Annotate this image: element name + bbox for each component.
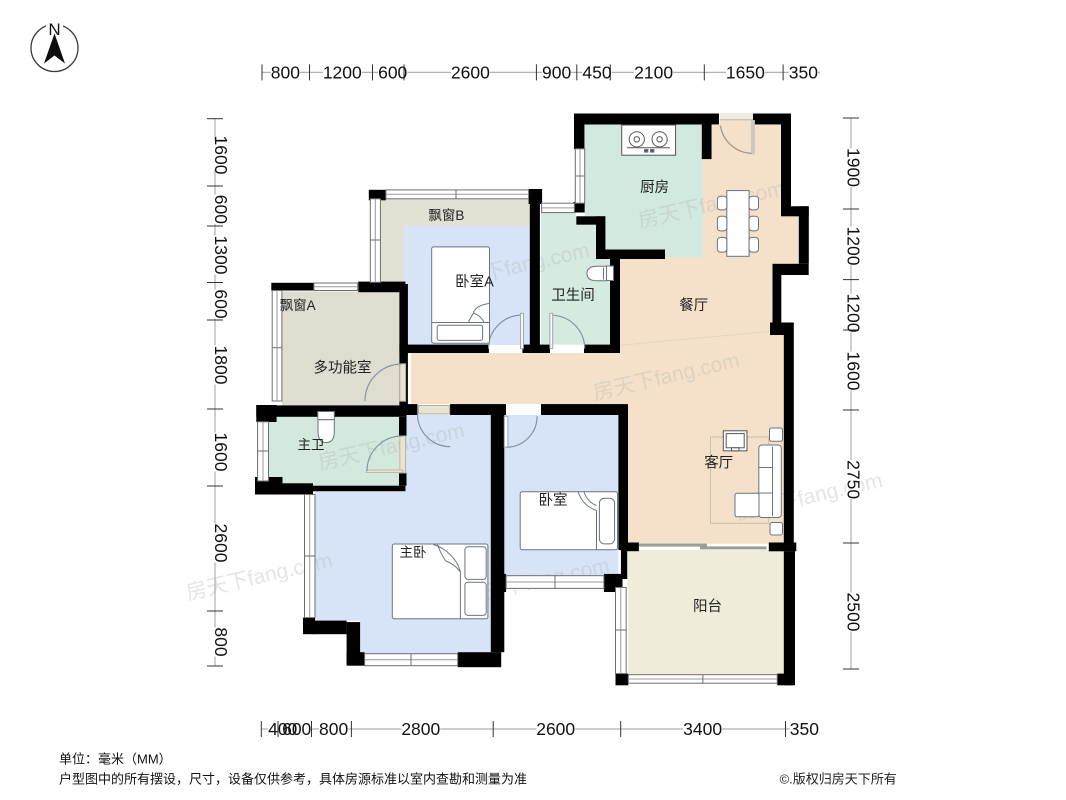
svg-text:户型图中的所有摆设，尺寸，设备仅供参考，具体房源标准以室内查: 户型图中的所有摆设，尺寸，设备仅供参考，具体房源标准以室内查勘和测量为准 bbox=[59, 772, 527, 787]
svg-text:1600: 1600 bbox=[211, 433, 231, 472]
svg-text:客厅: 客厅 bbox=[704, 455, 733, 472]
svg-text:900: 900 bbox=[542, 63, 571, 83]
svg-text:主卫: 主卫 bbox=[298, 438, 325, 453]
svg-text:800: 800 bbox=[271, 63, 300, 83]
svg-text:450: 450 bbox=[582, 63, 611, 83]
svg-text:1800: 1800 bbox=[211, 346, 231, 385]
svg-text:350: 350 bbox=[789, 63, 818, 83]
svg-text:阳台: 阳台 bbox=[693, 598, 722, 615]
svg-text:800: 800 bbox=[211, 627, 231, 656]
svg-text:350: 350 bbox=[790, 719, 819, 739]
svg-text:1900: 1900 bbox=[843, 148, 863, 187]
svg-text:1200: 1200 bbox=[843, 294, 863, 333]
svg-text:2600: 2600 bbox=[536, 719, 575, 739]
svg-text:600: 600 bbox=[211, 195, 231, 224]
svg-text:600: 600 bbox=[282, 719, 311, 739]
svg-text:1300: 1300 bbox=[211, 236, 231, 275]
svg-text:800: 800 bbox=[319, 719, 348, 739]
svg-text:1600: 1600 bbox=[843, 352, 863, 391]
svg-text:3400: 3400 bbox=[683, 719, 722, 739]
svg-text:飘窗A: 飘窗A bbox=[280, 297, 316, 313]
svg-text:餐厅: 餐厅 bbox=[679, 297, 708, 314]
svg-text:1200: 1200 bbox=[843, 227, 863, 266]
svg-text:1650: 1650 bbox=[726, 63, 765, 83]
svg-text:2800: 2800 bbox=[401, 719, 440, 739]
svg-text:主卧: 主卧 bbox=[400, 545, 427, 560]
svg-text:600: 600 bbox=[211, 289, 231, 318]
svg-text:卫生间: 卫生间 bbox=[551, 287, 595, 304]
svg-text:飘窗B: 飘窗B bbox=[428, 207, 464, 223]
svg-text:2750: 2750 bbox=[843, 460, 863, 499]
svg-text:卧室: 卧室 bbox=[539, 492, 568, 509]
svg-text:卧室A: 卧室A bbox=[455, 274, 494, 291]
svg-text:600: 600 bbox=[378, 63, 407, 83]
svg-text:单位：毫米（MM）: 单位：毫米（MM） bbox=[59, 752, 172, 767]
svg-text:厨房: 厨房 bbox=[640, 179, 669, 196]
svg-text:2500: 2500 bbox=[843, 593, 863, 632]
svg-text:1200: 1200 bbox=[323, 63, 362, 83]
svg-text:多功能室: 多功能室 bbox=[314, 360, 372, 377]
svg-text:2600: 2600 bbox=[451, 63, 490, 83]
svg-text:2100: 2100 bbox=[634, 63, 673, 83]
svg-text:2600: 2600 bbox=[211, 524, 231, 563]
svg-text:©.版权归房天下所有: ©.版权归房天下所有 bbox=[780, 772, 897, 787]
svg-text:1600: 1600 bbox=[211, 136, 231, 175]
